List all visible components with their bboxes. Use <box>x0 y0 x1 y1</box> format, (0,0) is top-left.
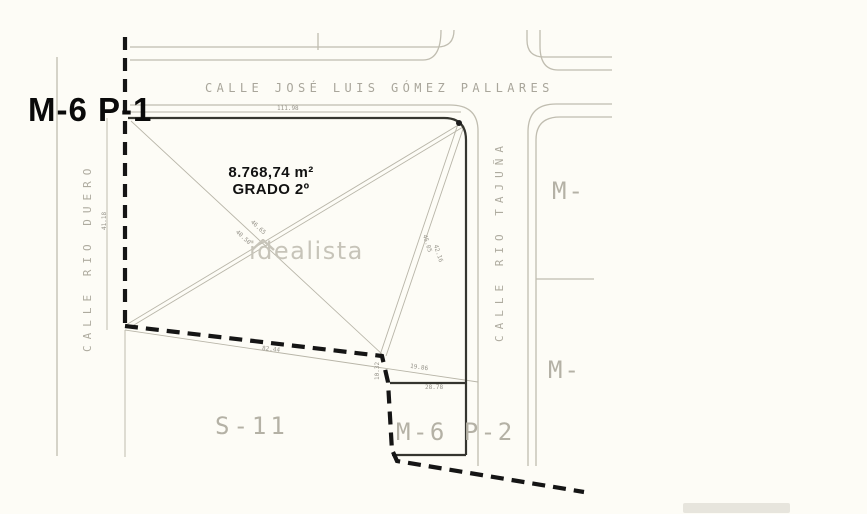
dimension-left-edge: 41.18 <box>101 212 108 230</box>
parcel-label-s11: S-11 <box>215 414 289 438</box>
dimension-subparcel-top: 28.78 <box>425 384 443 391</box>
parcel-label-m6-p2: M-6 P-2 <box>396 420 515 444</box>
cropped-watermark-strip <box>683 503 790 513</box>
parcel-title-m6-p1: M-6 P-1 <box>28 93 152 126</box>
survey-corner-node <box>456 120 462 126</box>
parcel-grade-value: GRADO 2º <box>186 181 356 198</box>
dimension-top-edge: 111.98 <box>277 105 299 112</box>
parcel-label-right-upper: M- <box>552 179 585 203</box>
cadastral-plan-canvas: M-6 P-1 CALLE JOSÉ LUIS GÓMEZ PALLARES C… <box>0 0 867 514</box>
parcel-label-right-lower: M- <box>548 358 581 382</box>
parcel-area-value: 8.768,74 m² <box>186 164 356 181</box>
street-name-left: CALLE RIO DUERO <box>82 157 93 352</box>
parcel-area-block: 8.768,74 m² GRADO 2º <box>186 164 356 198</box>
street-name-right: CALLE RIO TAJUÑA <box>494 137 505 342</box>
idealista-roof-icon <box>251 239 277 251</box>
dimension-subparcel-left: 10.32 <box>374 362 381 380</box>
street-name-top: CALLE JOSÉ LUIS GÓMEZ PALLARES <box>205 82 554 94</box>
watermark: idealista <box>249 239 364 263</box>
